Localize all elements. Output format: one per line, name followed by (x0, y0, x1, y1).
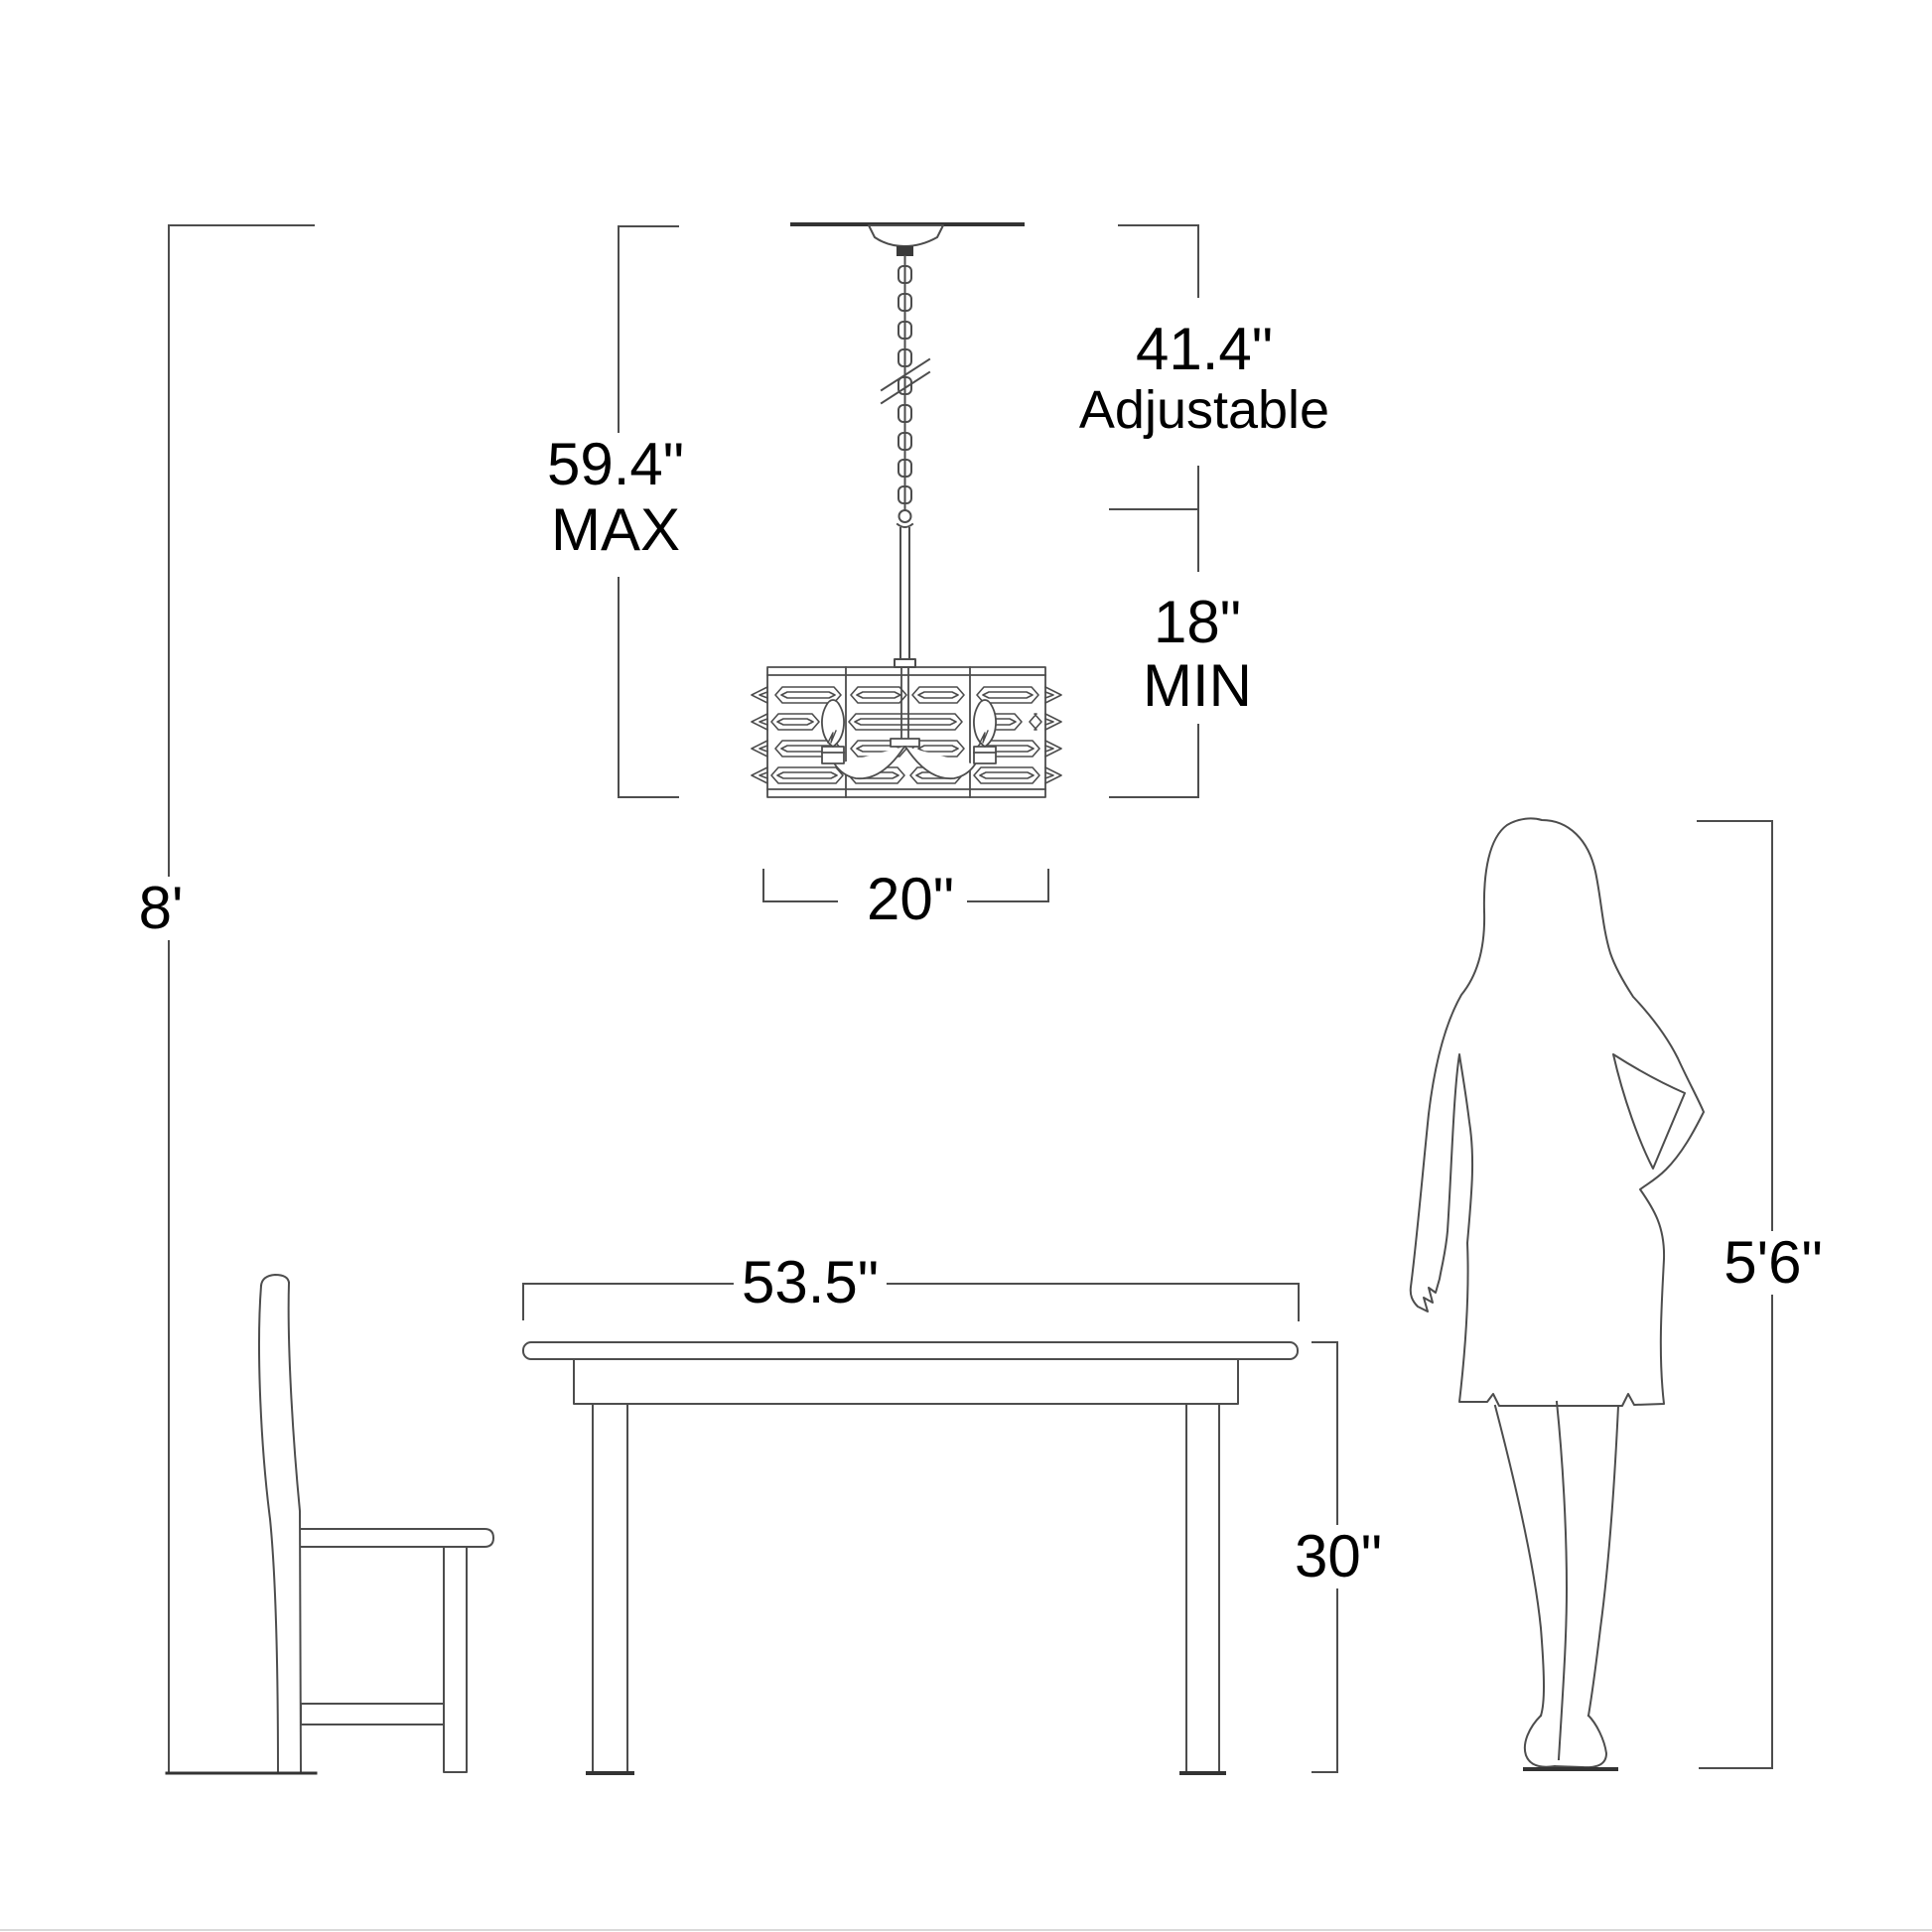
woman-silhouette (1411, 818, 1704, 1769)
chandelier-chain (882, 256, 929, 510)
right-candle (974, 700, 996, 763)
dim-ceiling-height-8ft (167, 225, 316, 1773)
label-fixture-width: 20" (859, 868, 962, 931)
line-art (0, 0, 1932, 1932)
label-min-value: 18" (1146, 591, 1249, 654)
dimension-diagram: 8' 59.4" MAX 41.4" Adjustable 18" MIN 20… (0, 0, 1932, 1932)
chandelier-shade (752, 667, 1061, 797)
label-min-word: MIN (1135, 654, 1260, 718)
label-person-height: 5'6" (1716, 1231, 1831, 1295)
dim-table-width-53-5 (523, 1284, 1299, 1320)
crystal-pattern (752, 687, 1061, 783)
label-ceiling-height: 8' (131, 877, 192, 940)
chandelier-canopy (869, 225, 943, 256)
label-adjustable-word: Adjustable (1071, 381, 1337, 439)
label-fixture-max-word: MAX (543, 498, 688, 562)
label-table-height: 30" (1287, 1525, 1390, 1588)
side-chair (259, 1275, 493, 1772)
label-adjustable-value: 41.4" (1128, 318, 1281, 381)
dining-table (523, 1342, 1298, 1773)
chandelier-pendant (752, 225, 1061, 797)
label-table-width: 53.5" (734, 1251, 887, 1314)
label-fixture-max-value: 59.4" (539, 433, 692, 496)
chandelier-downrod (895, 510, 915, 667)
left-candle (822, 700, 844, 763)
